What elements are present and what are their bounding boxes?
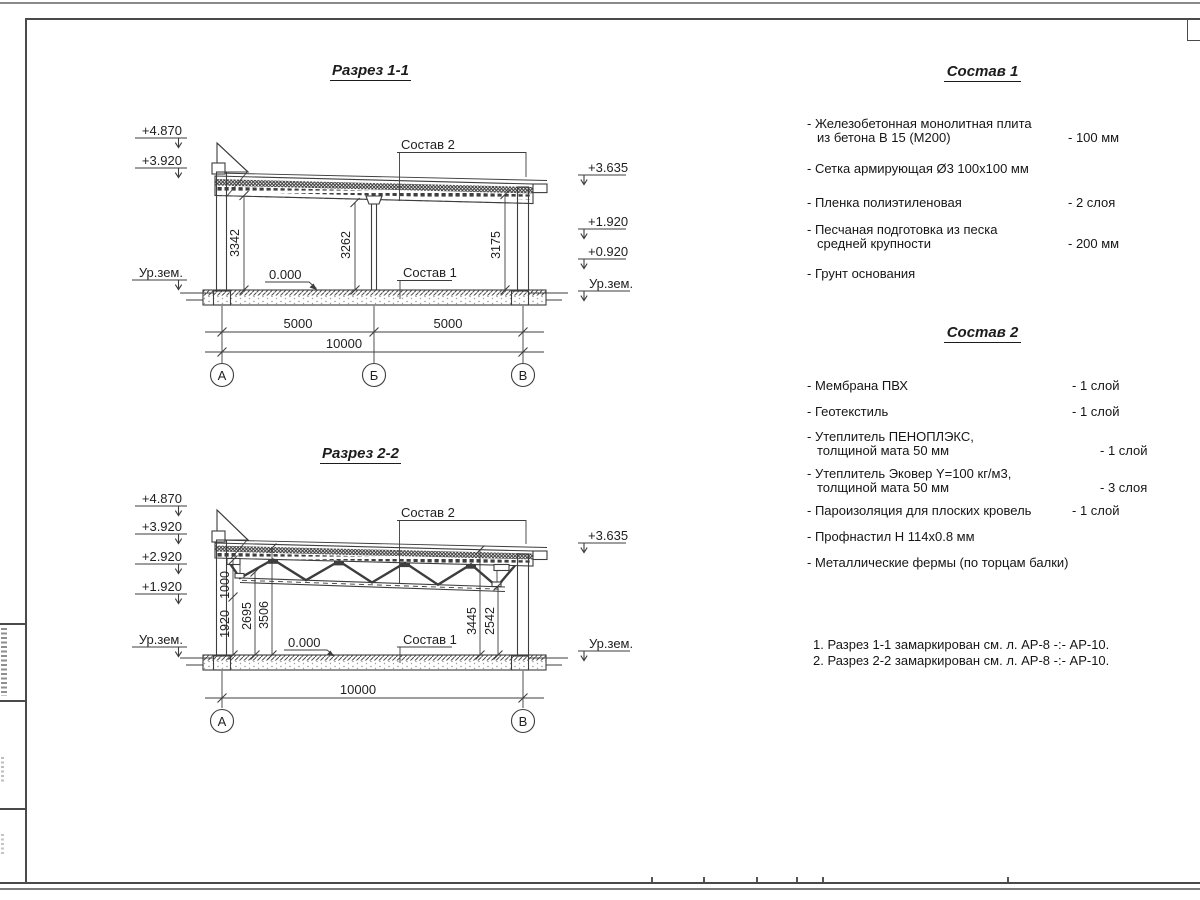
spec-line: - Мембрана ПВХ [807,379,1197,393]
roof-overhang-end [533,184,547,193]
spec-line: - Утеплитель Эковер Y=100 кг/м3, [807,467,1197,481]
dim-3445-label: 3445 [465,607,479,635]
dim-1000-label: 1000 [218,571,232,599]
dimension-3342: 3342 [228,191,249,295]
elevation-marks-right: +3.635 +1.920 +0.920 Ур.зем. [578,160,633,301]
notes: 1. Разрез 1-1 замаркирован см. л. АР-8 -… [813,637,1109,668]
elev-4870-label: +4.870 [142,123,182,138]
dimension-3262: 3262 [339,198,360,295]
roof-overhang-end [533,551,547,560]
spec1-heading: Состав 1 [900,63,1065,82]
spec-value: - 2 слоя [1068,196,1115,210]
spec-line: - Профнастил Н 114х0.8 мм [807,530,1197,544]
dim-3262-label: 3262 [339,231,353,259]
elev-2920-label: +2.920 [142,549,182,564]
ground-level-label-left: Ур.зем. [139,265,183,280]
dim-5000-left-label: 5000 [284,316,313,331]
elevation-marks-left: +4.870 +3.920 Ур.зем. [132,123,187,290]
zero-level-mark: 0.000 [284,635,334,657]
spec-line: - Металлические фермы (по торцам балки) [807,556,1197,570]
leader-sostav1-label: Состав 1 [403,265,457,280]
axis-v-label: В [519,368,528,383]
spec-line: - Песчаная подготовка из песка [807,223,1197,237]
column-axis-b [366,196,382,290]
axis-a-label: А [218,714,227,729]
bottom-dimensions: 5000 5000 10000 [205,306,544,363]
spec-line: - Утеплитель ПЕНОПЛЭКС, [807,430,1197,444]
elev-1920-label: +1.920 [588,214,628,229]
dimension-3175: 3175 [489,190,510,295]
elev-4870-label: +4.870 [142,491,182,506]
spec2-item-2: - Геотекстиль - 1 слой [807,405,1197,419]
section-2-2: 1000 1920 2695 3506 3445 2542 Состав 2 [132,491,633,733]
roof-assembly [215,540,547,566]
leader-sostav1-label: Состав 1 [403,632,457,647]
spec-line: средней крупности [817,237,1197,251]
dimension-2542: 2542 [483,582,503,660]
elevation-marks-left: +4.870 +3.920 +2.920 +1.920 Ур.зем. [132,491,187,657]
spec-line: - Грунт основания [807,267,1197,281]
note-2: 2. Разрез 2-2 замаркирован см. л. АР-8 -… [813,653,1109,669]
elev-1920-label: +1.920 [142,579,182,594]
spec-line: - Сетка армирующая Ø3 100х100 мм [807,162,1197,176]
dim-3175-label: 3175 [489,231,503,259]
floor-slab [180,655,568,670]
spec2-heading: Состав 2 [900,324,1065,343]
dim-5000-right-label: 5000 [434,316,463,331]
spec2-item-5: - Пароизоляция для плоских кровель - 1 с… [807,504,1197,518]
spec-line: - Пароизоляция для плоских кровель [807,504,1197,518]
spec2-item-3: - Утеплитель ПЕНОПЛЭКС, толщиной мата 50… [807,430,1197,458]
axis-bubbles: А Б В [211,364,535,387]
elev-3635-label: +3.635 [588,160,628,175]
ground-level-label-right: Ур.зем. [589,276,633,291]
dim-10000-label: 10000 [340,682,376,697]
axis-bubbles: А В [211,710,535,733]
spec-value: - 3 слоя [1100,481,1147,495]
spec-value: - 1 слой [1072,379,1120,393]
spec-value: - 1 слой [1072,405,1120,419]
floor-slab [180,290,568,305]
spec-line: - Геотекстиль [807,405,1197,419]
leader-sostav2-label: Состав 2 [401,505,455,520]
elev-0920-label: +0.920 [588,244,628,259]
spec1-item-1: - Железобетонная монолитная плита из бет… [807,117,1197,145]
spec-value: - 100 мм [1068,131,1119,145]
axis-a-label: А [218,368,227,383]
spec2-item-6: - Профнастил Н 114х0.8 мм [807,530,1197,544]
zero-level-label: 0.000 [269,267,302,282]
elev-3920-label: +3.920 [142,153,182,168]
section-1-1: 3342 3262 3175 Состав 2 Состав 1 0.000 [132,123,633,387]
drawing-sheet: { "section1": { "title": "Разрез 1-1", "… [0,0,1200,900]
dim-2542-label: 2542 [483,607,497,635]
spec1-item-5: - Грунт основания [807,267,1197,281]
dim-3342-label: 3342 [228,229,242,257]
spec-value: - 200 мм [1068,237,1119,251]
elev-3920-label: +3.920 [142,519,182,534]
elev-3635-label: +3.635 [588,528,628,543]
spec-line: - Пленка полиэтиленовая [807,196,1197,210]
spec2-item-4: - Утеплитель Эковер Y=100 кг/м3, толщино… [807,467,1197,495]
bottom-dimensions: 10000 [205,671,544,708]
axis-b-label: Б [370,368,379,383]
axis-v-label: В [519,714,528,729]
ground-level-label-right: Ур.зем. [589,636,633,651]
wall-right [518,554,529,655]
zero-level-mark: 0.000 [265,267,317,290]
dim-1920-label: 1920 [218,610,232,638]
ground-level-label-left: Ур.зем. [139,632,183,647]
spec-line: из бетона В 15 (М200) [817,131,1197,145]
leader-sostav2-label: Состав 2 [401,137,455,152]
spec1-item-4: - Песчаная подготовка из песка средней к… [807,223,1197,251]
spec2-item-1: - Мембрана ПВХ - 1 слой [807,379,1197,393]
dim-3506-label: 3506 [257,601,271,629]
spec2-item-7: - Металлические фермы (по торцам балки) [807,556,1197,570]
spec-line: - Железобетонная монолитная плита [807,117,1197,131]
zero-level-label: 0.000 [288,635,321,650]
spec2-heading-text: Состав 2 [944,324,1022,343]
spec-value: - 1 слой [1072,504,1120,518]
dim-2695-label: 2695 [240,602,254,630]
spec-value: - 1 слой [1100,444,1148,458]
spec1-item-2: - Сетка армирующая Ø3 100х100 мм [807,162,1197,176]
note-1: 1. Разрез 1-1 замаркирован см. л. АР-8 -… [813,637,1109,653]
dim-10000-label: 10000 [326,336,362,351]
spec1-heading-text: Состав 1 [944,63,1022,82]
elevation-marks-right: +3.635 Ур.зем. [578,528,633,661]
spec1-item-3: - Пленка полиэтиленовая - 2 слоя [807,196,1197,210]
